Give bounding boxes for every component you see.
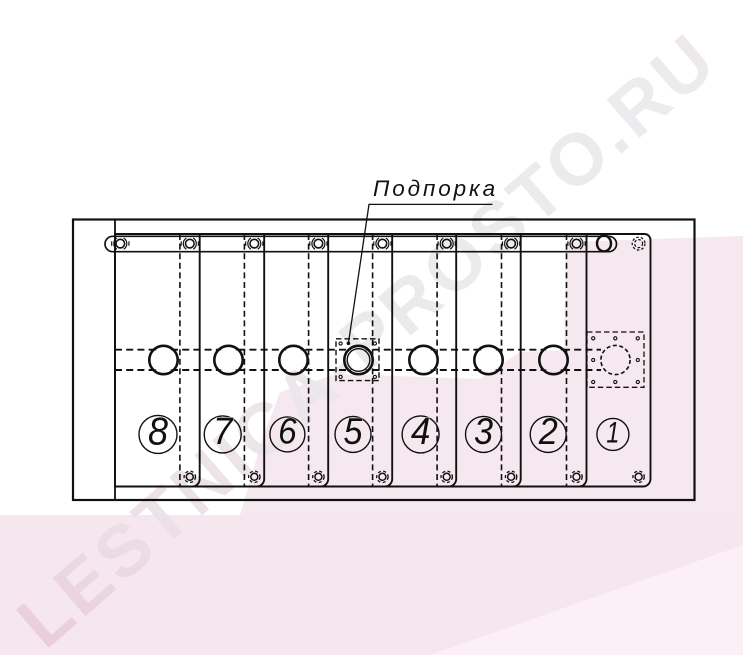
- svg-text:8: 8: [148, 411, 168, 454]
